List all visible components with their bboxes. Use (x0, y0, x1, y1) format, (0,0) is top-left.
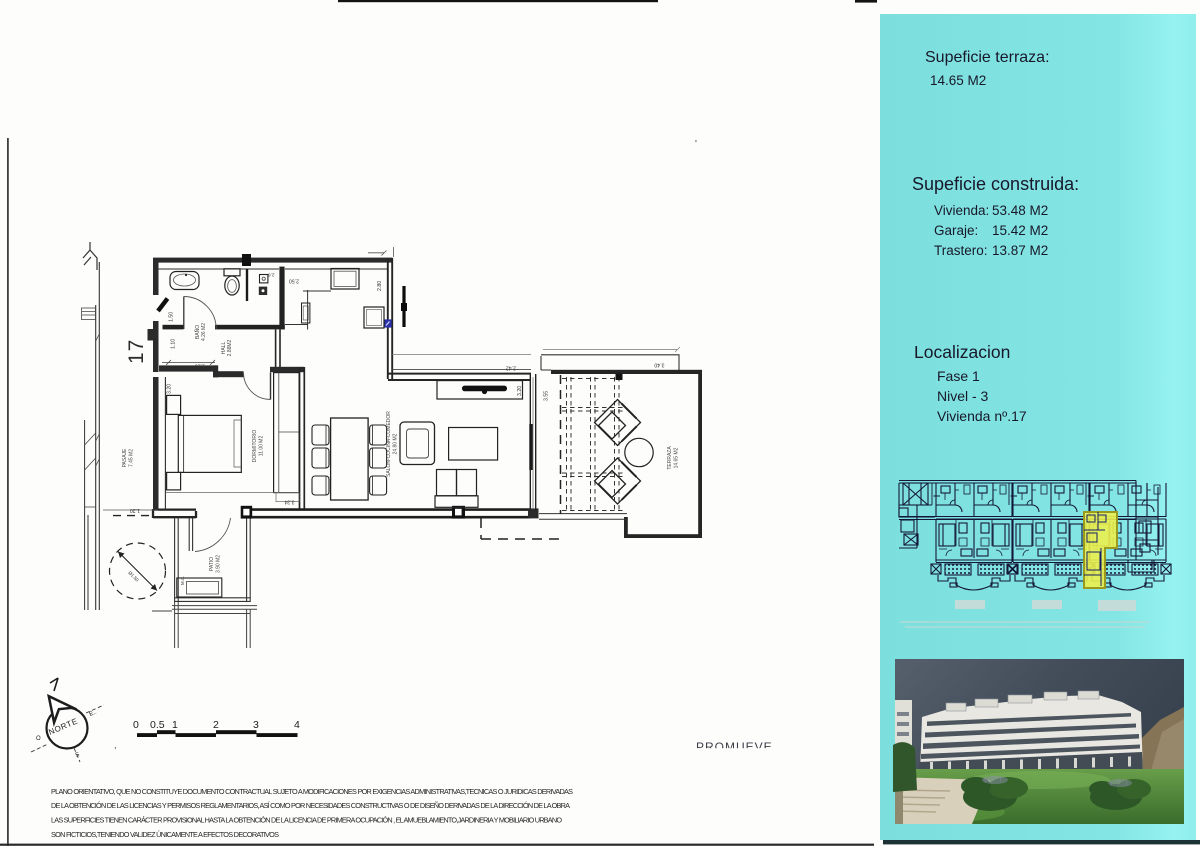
svg-text:,: , (114, 740, 117, 750)
svg-text:1.20: 1.20 (130, 507, 140, 513)
svg-text:PLANO ORIENTATIVO, QUE NO CONS: PLANO ORIENTATIVO, QUE NO CONSTITUYE DOC… (51, 787, 573, 796)
svg-text:11.00 M2: 11.00 M2 (259, 436, 265, 457)
svg-text:Nivel - 3: Nivel - 3 (937, 388, 989, 404)
svg-text:14.65 M2: 14.65 M2 (674, 447, 680, 468)
svg-text:3.20: 3.20 (517, 386, 523, 396)
svg-text:': ' (695, 139, 697, 150)
svg-text:2.50: 2.50 (289, 278, 299, 284)
svg-text:1.10: 1.10 (171, 339, 177, 349)
svg-text:SON FICTICIOS,TENIENDO VALIDEZ: SON FICTICIOS,TENIENDO VALIDEZ ÚNICAMENT… (51, 830, 279, 839)
svg-text:2.88M2: 2.88M2 (227, 339, 233, 356)
svg-text:Supeficie construida:: Supeficie construida: (912, 174, 1079, 194)
svg-text:0.5: 0.5 (150, 719, 165, 731)
svg-text:Vivienda nº.17: Vivienda nº.17 (937, 408, 1027, 424)
svg-text:Fase 1: Fase 1 (937, 368, 980, 384)
svg-text:3: 3 (253, 719, 259, 731)
svg-text:Supeficie terraza:: Supeficie terraza: (925, 49, 1050, 66)
svg-text:TERRAZA: TERRAZA (667, 446, 673, 470)
svg-text:2: 2 (213, 719, 219, 731)
svg-text:1.50: 1.50 (169, 312, 175, 322)
svg-text:SALON-COCINA-COMEDOR: SALON-COCINA-COMEDOR (386, 411, 392, 477)
svg-text:BAÑO: BAÑO (194, 325, 201, 339)
svg-text:PASAJE: PASAJE (122, 448, 128, 467)
svg-text:53.48 M2: 53.48 M2 (992, 203, 1048, 218)
svg-text:3.55: 3.55 (544, 391, 550, 401)
svg-text:DORMITORIO: DORMITORIO (252, 430, 258, 463)
svg-text:4: 4 (294, 719, 300, 731)
svg-text:Vivienda:: Vivienda: (934, 203, 989, 218)
svg-text:13.87 M2: 13.87 M2 (992, 243, 1048, 258)
svg-text:DE LA OBTENCIÓN DE LAS LICENCI: DE LA OBTENCIÓN DE LAS LICENCIAS Y PERMI… (51, 801, 570, 810)
svg-text:2.6: 2.6 (268, 273, 275, 278)
svg-text:7.45 M2: 7.45 M2 (129, 449, 135, 467)
svg-text:24.80 M2: 24.80 M2 (393, 433, 399, 454)
svg-text:LAS SUPERFICIES TIENEN CARÁCTE: LAS SUPERFICIES TIENEN CARÁCTER PROVISIO… (51, 816, 562, 825)
svg-text:1.20: 1.20 (195, 363, 205, 369)
svg-text:3.20: 3.20 (167, 384, 173, 394)
svg-text:17: 17 (125, 339, 148, 364)
svg-text:M.C.: M.C. (180, 576, 185, 585)
svg-text:PATIO: PATIO (209, 557, 215, 571)
svg-text:3.34: 3.34 (284, 499, 294, 505)
svg-text:4.26 M2: 4.26 M2 (201, 323, 207, 341)
svg-text:15.42 M2: 15.42 M2 (992, 223, 1048, 238)
svg-text:1: 1 (172, 719, 178, 731)
svg-text:O: O (36, 736, 41, 742)
svg-text:Trastero:: Trastero: (934, 243, 988, 258)
svg-text:3.90 M2: 3.90 M2 (216, 555, 222, 573)
svg-text:3.40: 3.40 (654, 362, 664, 368)
svg-text:Localizacion: Localizacion (914, 342, 1010, 362)
svg-text:Garaje:: Garaje: (934, 223, 978, 238)
svg-text:2.42: 2.42 (506, 365, 516, 371)
svg-text:0: 0 (133, 719, 139, 731)
svg-text:2.80: 2.80 (377, 281, 383, 291)
svg-text:14.65 M2: 14.65 M2 (930, 73, 986, 88)
